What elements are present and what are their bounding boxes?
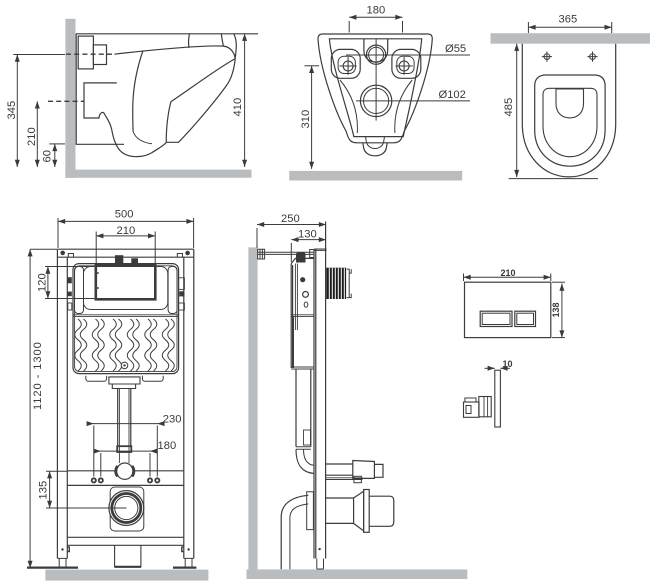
- svg-text:485: 485: [503, 98, 515, 117]
- svg-text:10: 10: [503, 359, 513, 369]
- svg-text:138: 138: [551, 302, 561, 317]
- svg-text:310: 310: [300, 110, 312, 129]
- svg-text:135: 135: [38, 481, 50, 500]
- svg-text:365: 365: [559, 14, 578, 26]
- svg-text:180: 180: [158, 440, 177, 452]
- svg-text:345: 345: [6, 101, 18, 120]
- svg-text:Ø55: Ø55: [445, 43, 466, 55]
- svg-text:180: 180: [367, 5, 386, 17]
- svg-text:500: 500: [115, 209, 134, 221]
- svg-text:210: 210: [501, 268, 516, 278]
- svg-text:Ø102: Ø102: [439, 89, 466, 101]
- svg-text:250: 250: [281, 213, 300, 225]
- svg-text:60: 60: [41, 150, 53, 162]
- svg-text:210: 210: [26, 127, 38, 146]
- svg-text:230: 230: [163, 413, 182, 425]
- svg-text:410: 410: [232, 98, 244, 117]
- svg-text:1120 - 1300: 1120 - 1300: [32, 341, 44, 410]
- svg-text:130: 130: [298, 228, 317, 240]
- svg-text:120: 120: [36, 273, 48, 292]
- svg-text:210: 210: [117, 225, 136, 237]
